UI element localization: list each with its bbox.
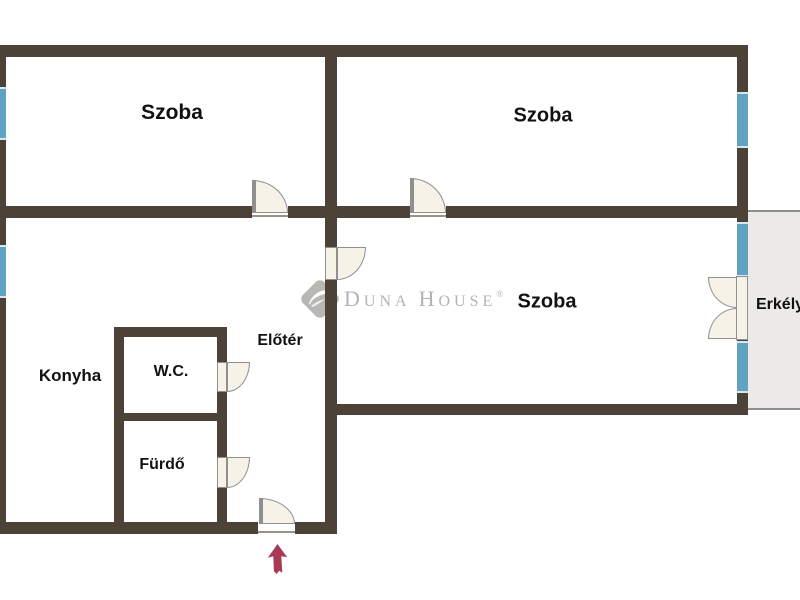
wall-mid-horizontal <box>0 206 252 218</box>
logo-letter: H <box>419 286 439 311</box>
door-symbol <box>410 178 446 213</box>
balcony-door-panel <box>736 276 748 340</box>
door-leaf <box>217 457 227 488</box>
window-symbol <box>0 245 6 298</box>
wall-wc-box-top <box>114 327 227 337</box>
logo-letter: D <box>344 286 364 311</box>
room-label-eloter: Előtér <box>257 332 302 350</box>
door-leaf <box>217 362 227 392</box>
floorplan-canvas: DUNA HOUSE® Szoba S <box>0 0 800 600</box>
registered-mark: ® <box>496 289 503 299</box>
room-label-erkely: Erkély <box>756 296 800 314</box>
entrance-arrow-icon <box>267 544 288 574</box>
entrance-door-symbol <box>259 498 295 524</box>
door-symbol <box>227 362 250 392</box>
room-label-szoba-top-right: Szoba <box>514 105 573 128</box>
wall-bottom <box>0 522 258 534</box>
window-symbol <box>0 87 6 140</box>
wall-center-vertical <box>325 45 337 247</box>
wall-mid-horizontal <box>446 206 748 218</box>
window-symbol <box>737 222 748 277</box>
door-leaf <box>325 247 337 280</box>
wall-top <box>0 45 748 57</box>
balcony-door-symbol <box>708 308 737 339</box>
wall-bottom <box>295 522 337 534</box>
room-label-furdo: Fürdő <box>139 456 184 474</box>
window-symbol <box>737 341 748 393</box>
window-symbol <box>737 92 748 148</box>
wall-wc-box-right <box>217 488 227 522</box>
logo-letters: UNA <box>364 293 411 310</box>
door-symbol <box>227 457 250 488</box>
balcony-door-symbol <box>708 277 737 308</box>
door-threshold <box>258 531 295 533</box>
wall-wc-box-left <box>114 327 124 522</box>
door-symbol <box>337 247 366 280</box>
room-label-szoba-top-left: Szoba <box>141 101 203 125</box>
wall-szoba-middle-bottom <box>325 404 748 415</box>
wall-wc-box-right <box>217 327 227 362</box>
room-label-szoba-middle: Szoba <box>518 291 577 314</box>
wall-wc-box-right <box>217 392 227 457</box>
wall-wc-furdo-divider <box>114 413 227 421</box>
room-label-konyha: Konyha <box>39 366 101 386</box>
wall-mid-horizontal <box>288 206 410 218</box>
room-label-wc: W.C. <box>154 363 189 381</box>
door-threshold <box>410 215 446 217</box>
logo-letters: OUSE <box>438 293 496 310</box>
duna-house-logo-text: DUNA HOUSE® <box>344 286 503 312</box>
door-threshold <box>252 215 288 217</box>
door-symbol <box>252 180 288 213</box>
